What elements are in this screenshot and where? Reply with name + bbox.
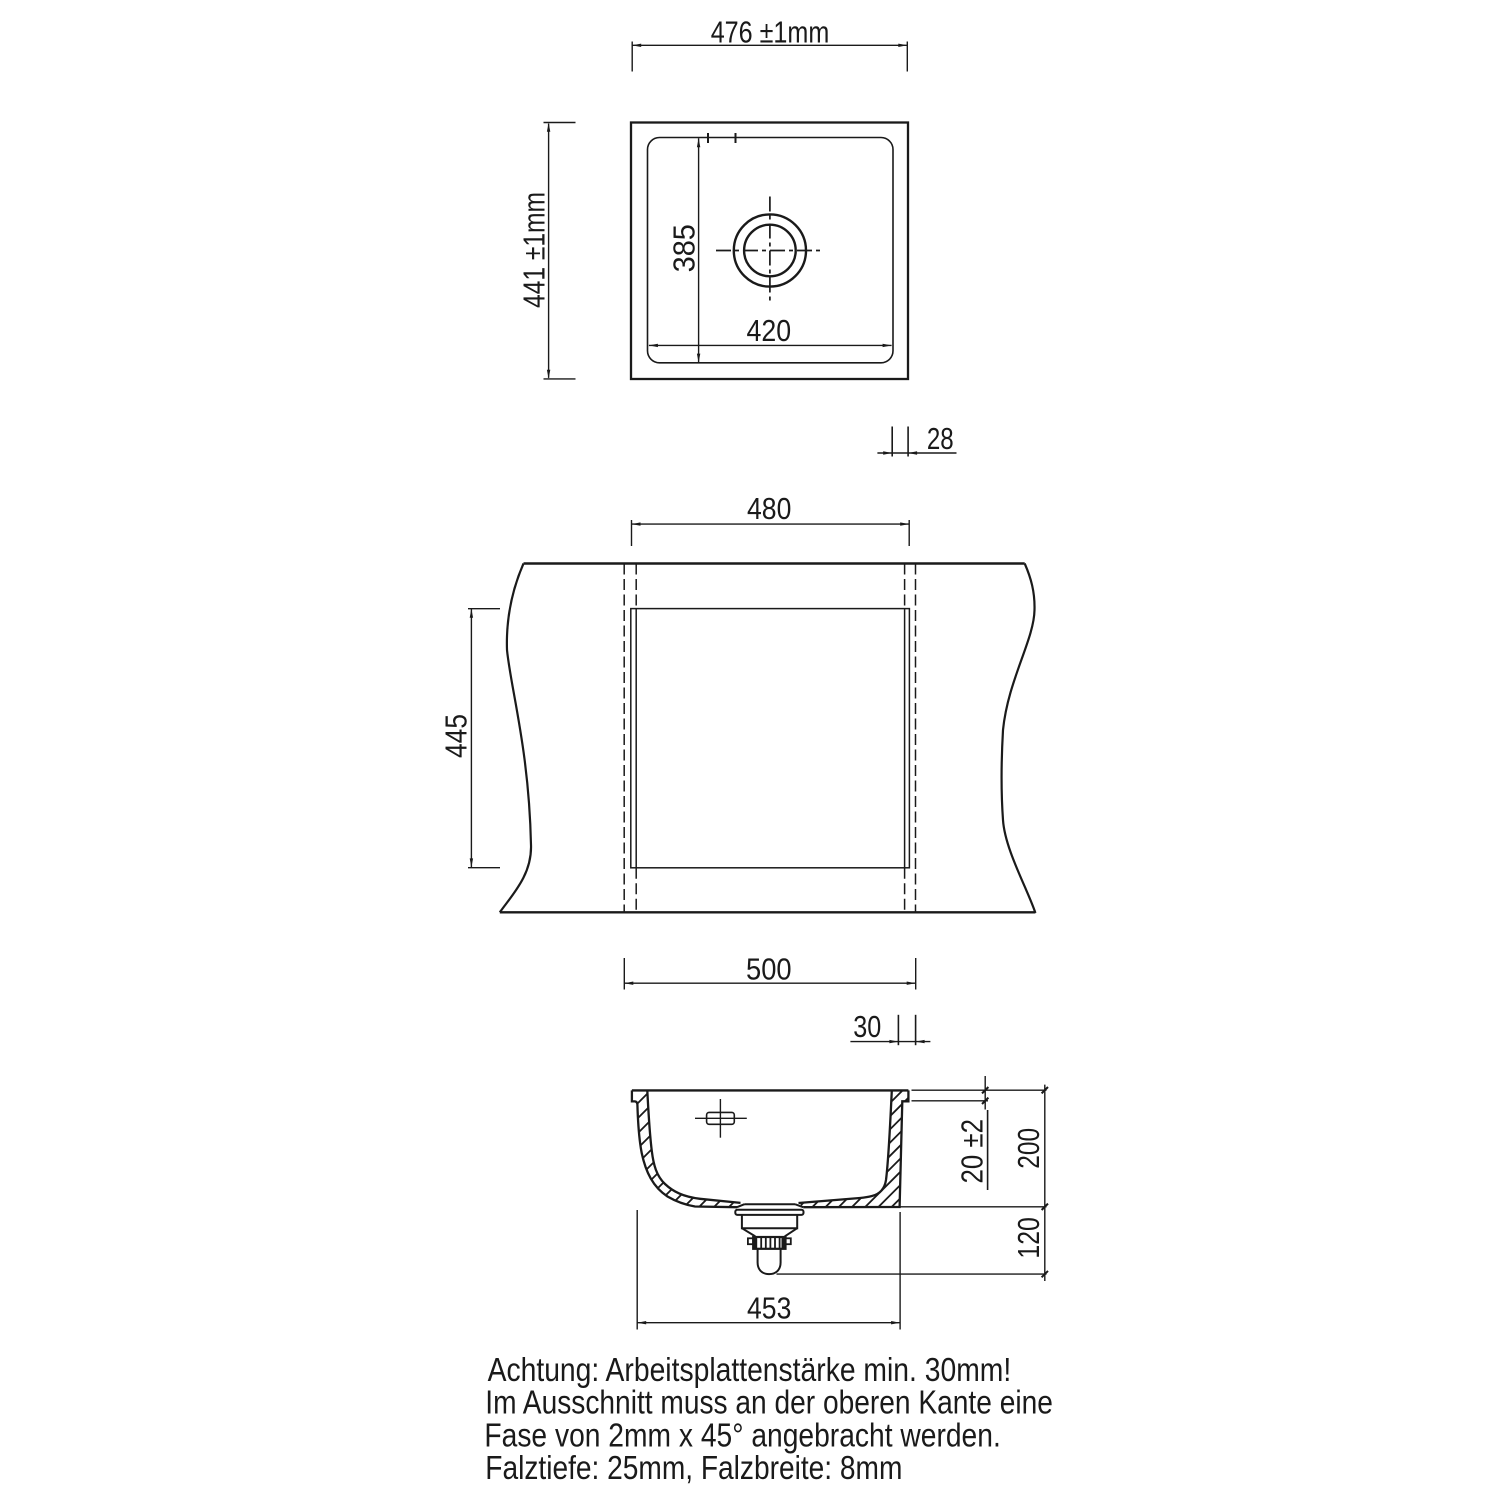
svg-text:500: 500 [746, 951, 792, 986]
svg-text:420: 420 [747, 313, 792, 348]
svg-text:385: 385 [667, 224, 702, 272]
svg-text:30: 30 [853, 1009, 881, 1044]
svg-text:Falztiefe: 25mm, Falzbreite: 8: Falztiefe: 25mm, Falzbreite: 8mm [485, 1449, 902, 1486]
svg-text:20 ±2: 20 ±2 [955, 1119, 990, 1184]
svg-text:445: 445 [438, 714, 473, 758]
svg-text:476 ±1mm: 476 ±1mm [711, 15, 830, 50]
svg-text:480: 480 [747, 491, 791, 526]
svg-text:200: 200 [1011, 1128, 1046, 1169]
svg-text:Im Ausschnitt muss an der ober: Im Ausschnitt muss an der oberen Kante e… [485, 1384, 1053, 1421]
svg-text:28: 28 [927, 421, 954, 456]
svg-text:120: 120 [1011, 1217, 1046, 1258]
svg-text:441 ±1mm: 441 ±1mm [517, 192, 552, 308]
svg-text:Achtung: Arbeitsplattenstärke: Achtung: Arbeitsplattenstärke min. 30mm! [488, 1351, 1012, 1388]
svg-text:Fase von 2mm x 45° angebracht: Fase von 2mm x 45° angebracht werden. [484, 1417, 1000, 1454]
svg-text:453: 453 [747, 1291, 791, 1326]
